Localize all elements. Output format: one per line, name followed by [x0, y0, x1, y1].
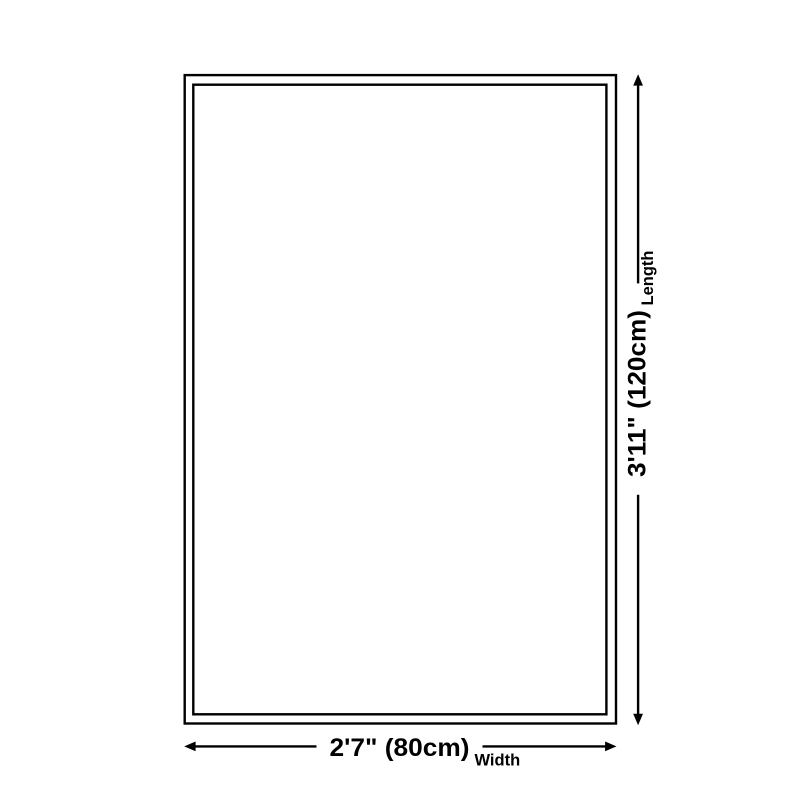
svg-text:Length: Length: [639, 251, 657, 306]
svg-text:Width: Width: [475, 752, 521, 770]
svg-text:2'7" (80cm): 2'7" (80cm): [330, 734, 470, 762]
svg-text:3'11" (120cm): 3'11" (120cm): [623, 310, 651, 477]
